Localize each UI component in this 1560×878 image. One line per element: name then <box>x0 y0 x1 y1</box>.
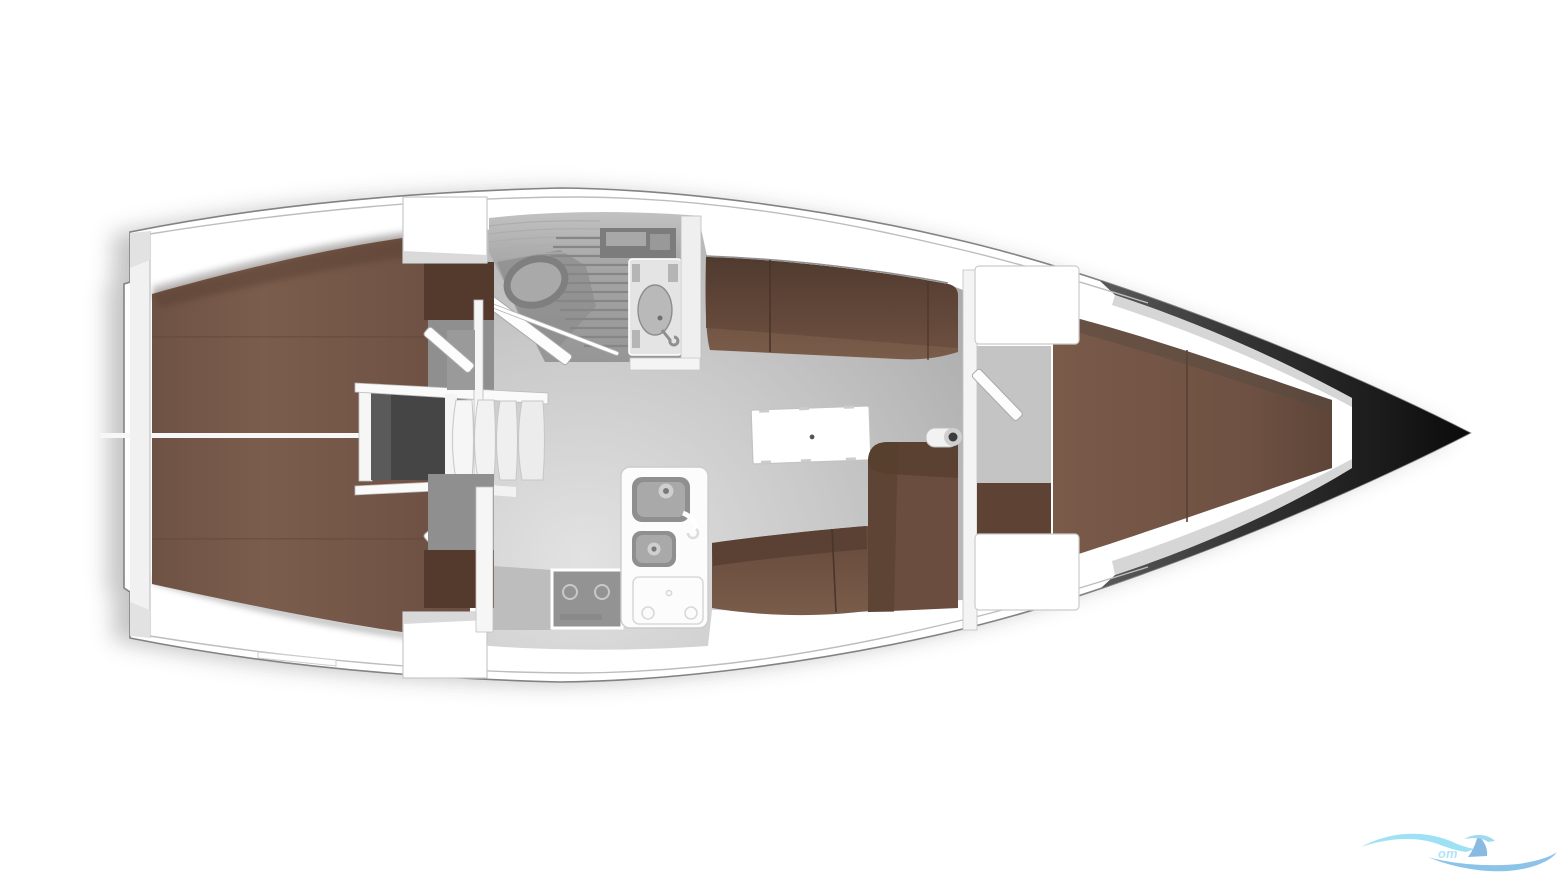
svg-text:om: om <box>1438 846 1458 861</box>
